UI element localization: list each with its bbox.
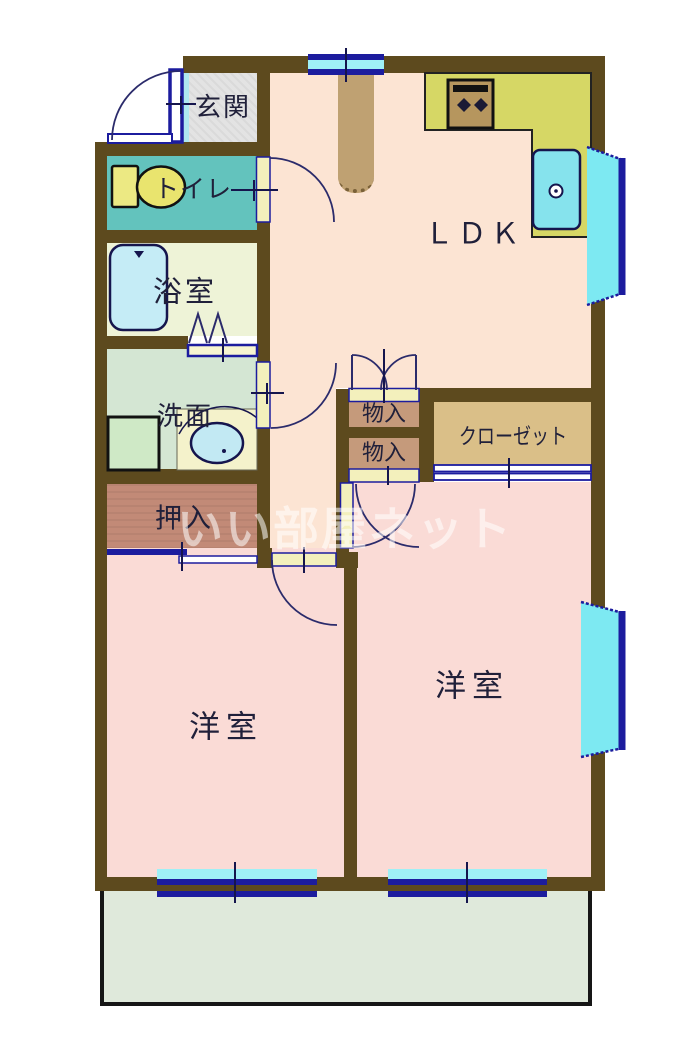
stove-icon — [448, 80, 493, 128]
label-genkan: 玄関 — [195, 95, 251, 121]
entrance-door — [108, 70, 196, 143]
label-bedroom-left: 洋室 — [189, 712, 263, 743]
storage1-doors — [349, 349, 419, 403]
closet-sliding-door — [434, 458, 591, 488]
bay-window-bedroom — [581, 602, 623, 757]
window-bedroom-left — [157, 862, 317, 903]
kitchen-sink-icon — [533, 150, 580, 229]
watermark: いい部屋ネット — [177, 493, 513, 559]
label-bath: 浴室 — [153, 279, 217, 308]
window-top — [308, 48, 384, 82]
window-bedroom-right — [388, 862, 547, 903]
bay-window-ldk — [587, 147, 623, 305]
label-closet: クローゼット — [459, 426, 567, 448]
label-washroom: 洗面 — [157, 404, 213, 430]
label-storage2: 物入 — [362, 442, 406, 464]
label-bedroom-right: 洋室 — [435, 671, 509, 702]
folding-door-zigzag — [189, 314, 227, 343]
floor-plan: 玄関 トイレ 浴室 洗面 押入 ＬＤＫ 物入 物入 クローゼット 洋室 洋室 い… — [0, 0, 700, 1050]
label-storage1: 物入 — [362, 403, 406, 425]
washing-machine-pan-icon — [108, 417, 159, 470]
label-ldk: ＬＤＫ — [424, 221, 523, 250]
label-toilet: トイレ — [154, 178, 232, 203]
door-swing-arc — [270, 158, 334, 222]
door-swing-arc — [271, 363, 336, 428]
toilet-door — [231, 157, 334, 222]
bath-folding-door — [188, 314, 257, 362]
washroom-door — [251, 362, 336, 428]
